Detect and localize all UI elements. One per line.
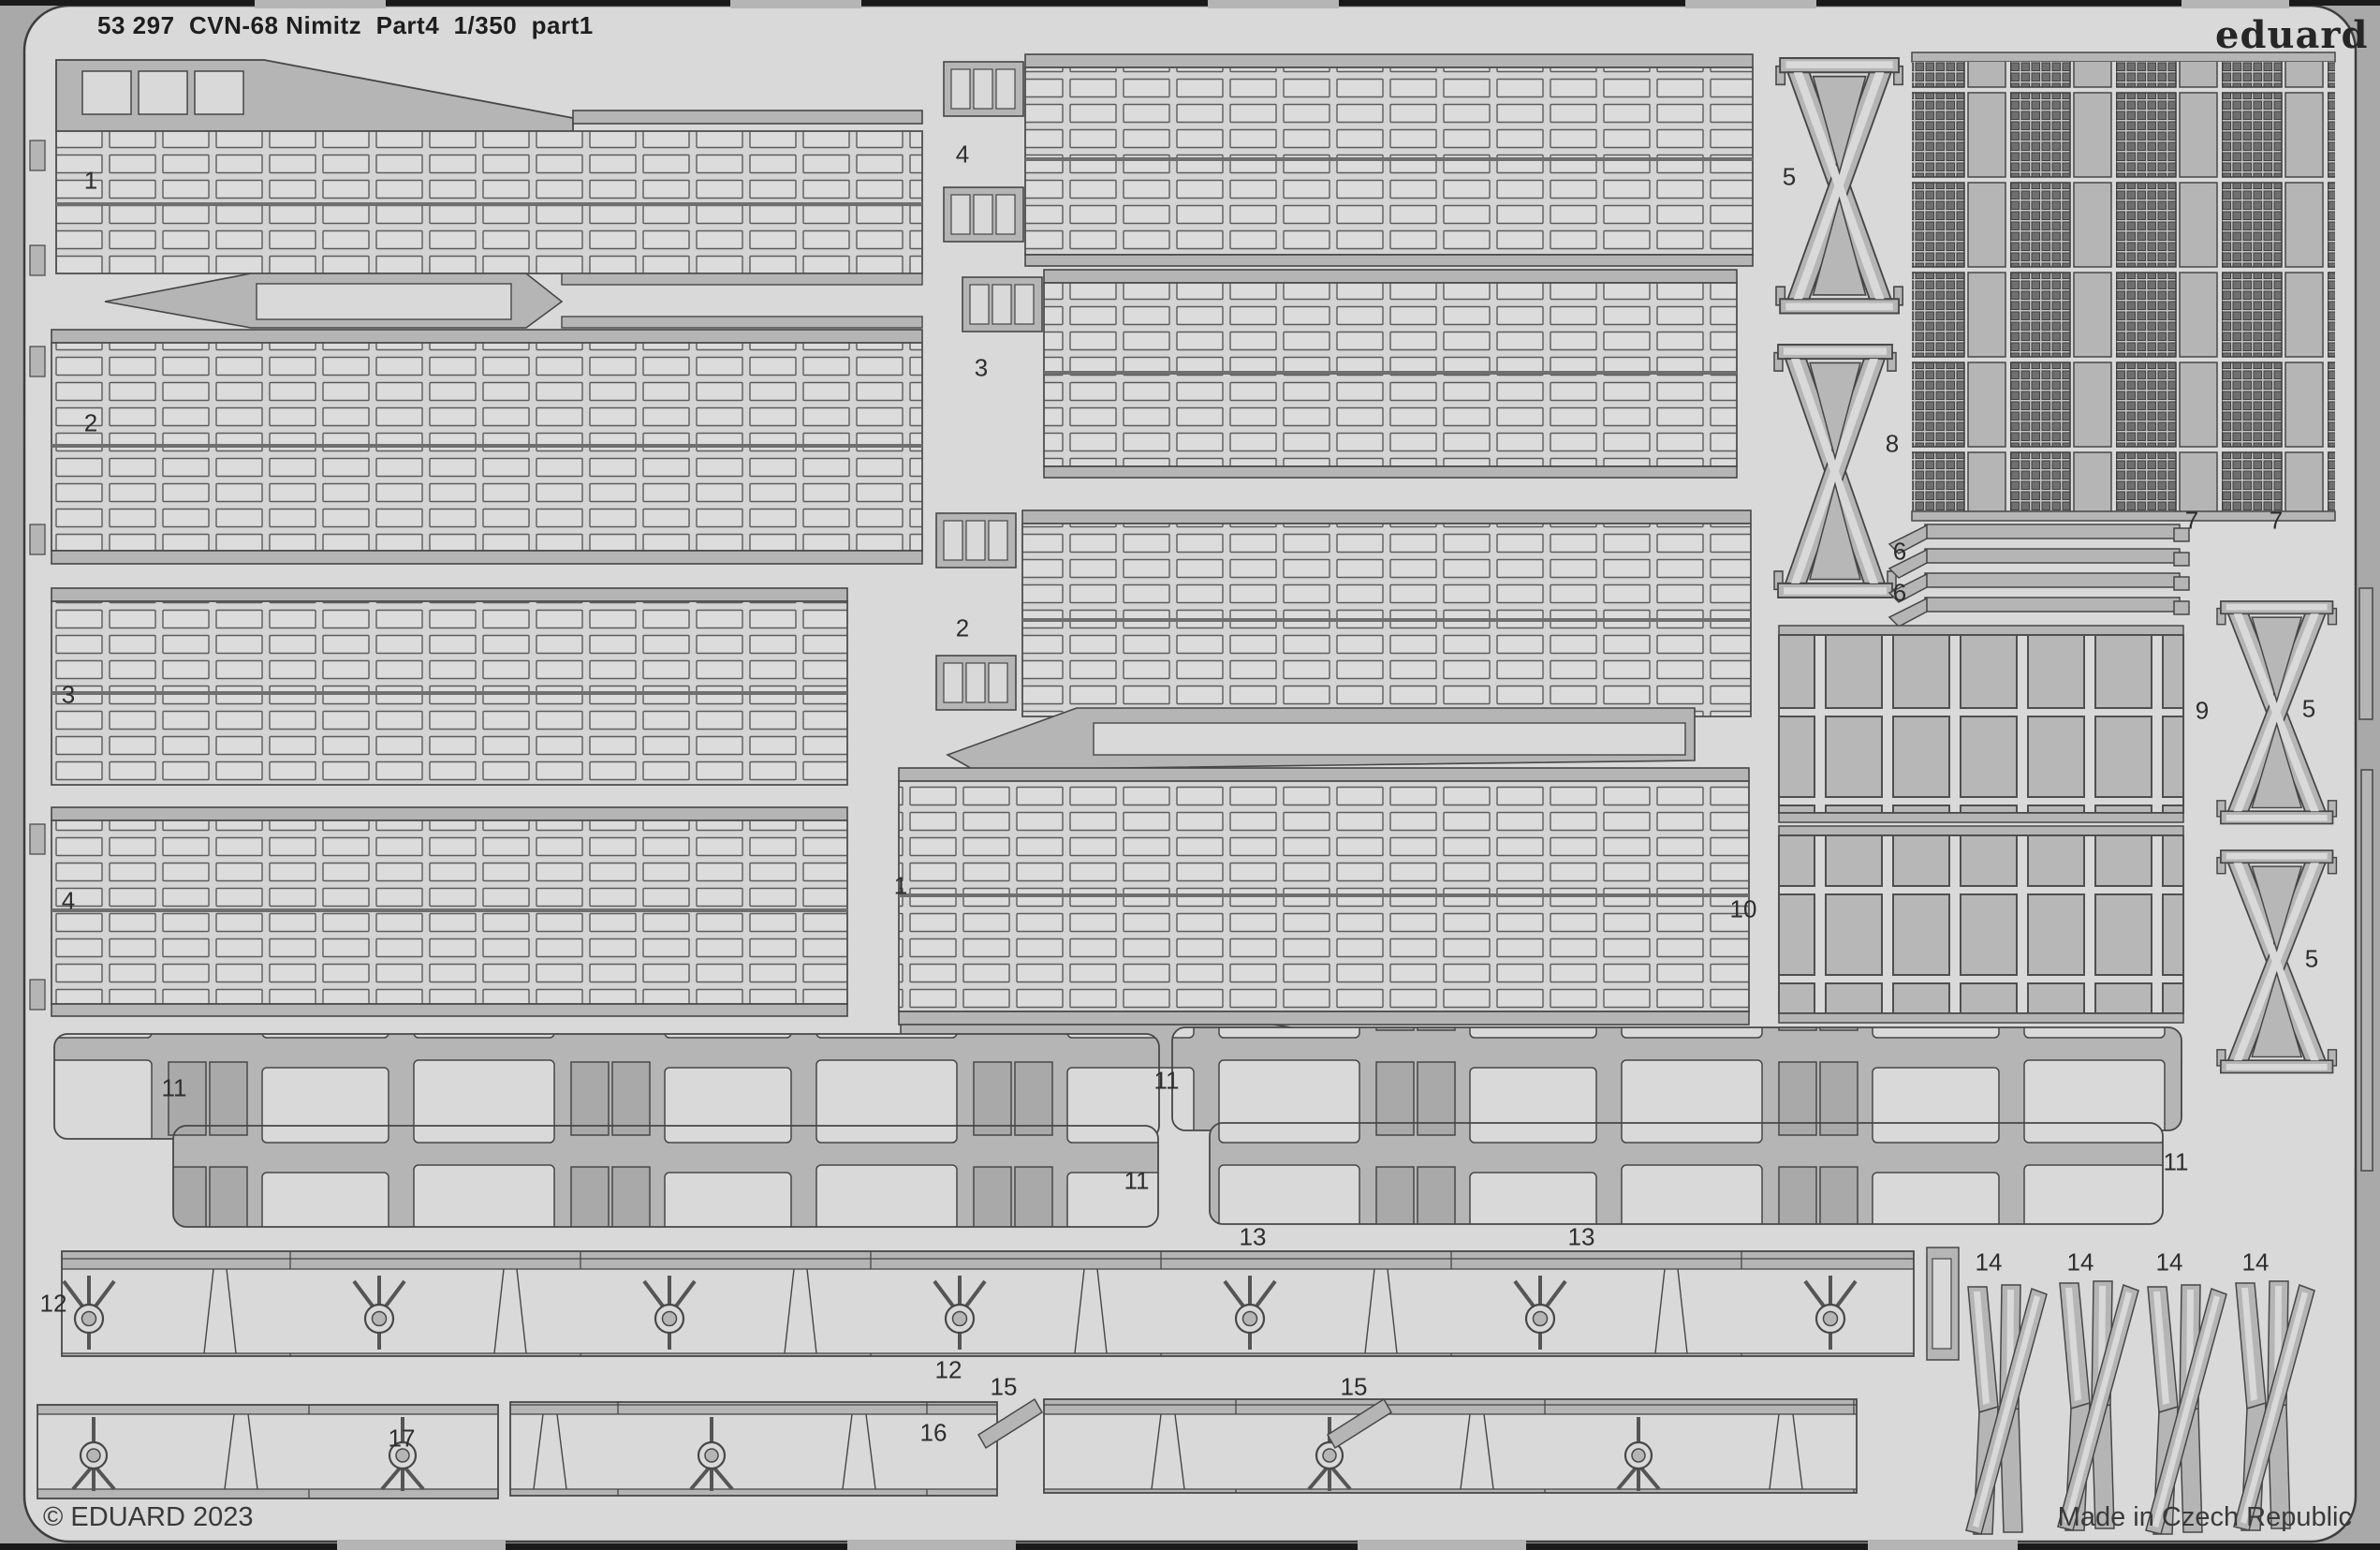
part-label-1: 1 (84, 167, 97, 196)
part-3-panel (51, 588, 847, 785)
fret-graphics (0, 0, 2380, 1550)
part-label-2b: 2 (956, 614, 969, 643)
part-12-13-strip-row (62, 1251, 1914, 1356)
part-label-5d: 5 (2305, 945, 2318, 974)
part-label-14a: 14 (1976, 1248, 2003, 1277)
photo-etch-sheet: 53 297 CVN-68 Nimitz Part4 1/350 part1 e… (0, 0, 2380, 1550)
part-label-6b: 6 (1893, 579, 1906, 608)
part-label-4b: 4 (956, 140, 969, 170)
sheet-title: 53 297 CVN-68 Nimitz Part4 1/350 part1 (97, 11, 594, 40)
part-label-14d: 14 (2242, 1248, 2270, 1277)
part-2-panel-middle (936, 510, 1751, 716)
part-label-8: 8 (1886, 430, 1899, 459)
part-label-11a: 11 (162, 1074, 187, 1103)
part-label-11b: 11 (1154, 1067, 1180, 1096)
part-2-panel (51, 330, 922, 564)
part-label-16: 16 (920, 1419, 948, 1448)
part-label-12a: 12 (40, 1290, 67, 1319)
part-label-3b: 3 (975, 354, 988, 383)
part-label-4: 4 (62, 887, 75, 916)
part-16-strip (510, 1402, 997, 1496)
part-11-catwalks (54, 1027, 2182, 1227)
part-label-1b: 1 (894, 872, 907, 901)
part-17-strip (37, 1405, 498, 1498)
part-label-15b: 15 (1341, 1373, 1368, 1402)
copyright-text: © EDUARD 2023 (43, 1502, 253, 1533)
part-label-5a: 5 (1783, 163, 1796, 192)
part-label-3: 3 (62, 681, 75, 710)
part-1-panel-middle (899, 768, 1749, 1068)
part-label-11c: 11 (1124, 1167, 1150, 1196)
part-label-15a: 15 (991, 1373, 1018, 1402)
part-label-11d: 11 (2164, 1148, 2189, 1177)
part-label-5c: 5 (2302, 695, 2315, 724)
eduard-logo: eduard (2215, 13, 2368, 57)
part-label-13a: 13 (1240, 1223, 1267, 1252)
part-label-13b: 13 (1568, 1223, 1595, 1252)
part-4-panel (51, 807, 847, 1016)
part-10-panel (1779, 826, 2183, 1023)
part-label-12b: 12 (935, 1356, 962, 1385)
part-4-panel-middle (944, 54, 1753, 266)
part-label-6a: 6 (1893, 538, 1906, 567)
part-label-17: 17 (389, 1425, 416, 1454)
part-label-10: 10 (1730, 895, 1757, 924)
part-9-panel (1779, 626, 2183, 822)
part-label-7a: 7 (2185, 507, 2198, 536)
part-label-7b: 7 (2270, 507, 2283, 536)
part-label-9: 9 (2196, 697, 2209, 726)
part-label-2: 2 (84, 409, 97, 438)
part-2-1-connector (948, 708, 1695, 770)
part-label-14c: 14 (2156, 1248, 2183, 1277)
part-label-14b: 14 (2067, 1248, 2094, 1277)
made-in-text: Made in Czech Republic (2058, 1502, 2352, 1533)
part-3-panel-middle (962, 270, 1737, 478)
part-8-mesh-block (1912, 52, 2335, 521)
part-15-strip (978, 1399, 1857, 1493)
right-edge-strips (2359, 588, 2373, 1171)
